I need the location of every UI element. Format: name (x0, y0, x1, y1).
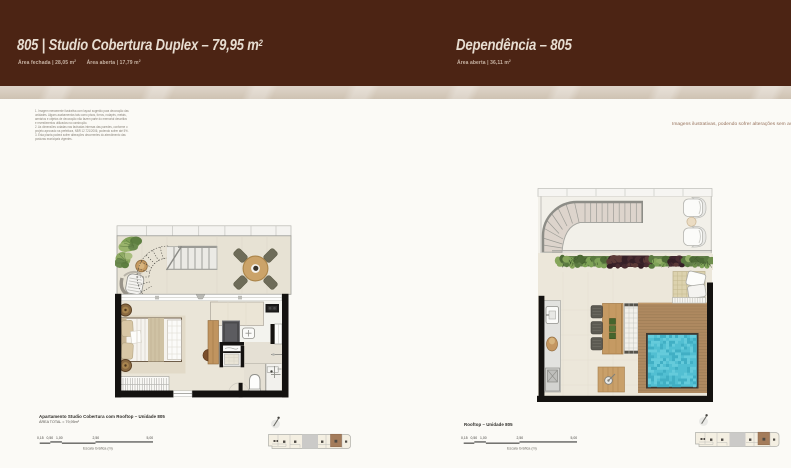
svg-text:0,15: 0,15 (37, 436, 44, 440)
svg-text:2,50: 2,50 (93, 436, 100, 440)
svg-text:0,15: 0,15 (461, 436, 468, 440)
svg-text:5,00: 5,00 (571, 436, 578, 440)
svg-text:2,50: 2,50 (517, 436, 524, 440)
svg-text:0,50: 0,50 (471, 436, 478, 440)
svg-text:0,50: 0,50 (47, 436, 54, 440)
svg-text:5,00: 5,00 (147, 436, 154, 440)
svg-text:Escala Gráfica (m): Escala Gráfica (m) (507, 447, 537, 451)
svg-text:1,00: 1,00 (480, 436, 487, 440)
svg-text:1,00: 1,00 (56, 436, 63, 440)
svg-text:Escala Gráfica (m): Escala Gráfica (m) (83, 447, 113, 451)
